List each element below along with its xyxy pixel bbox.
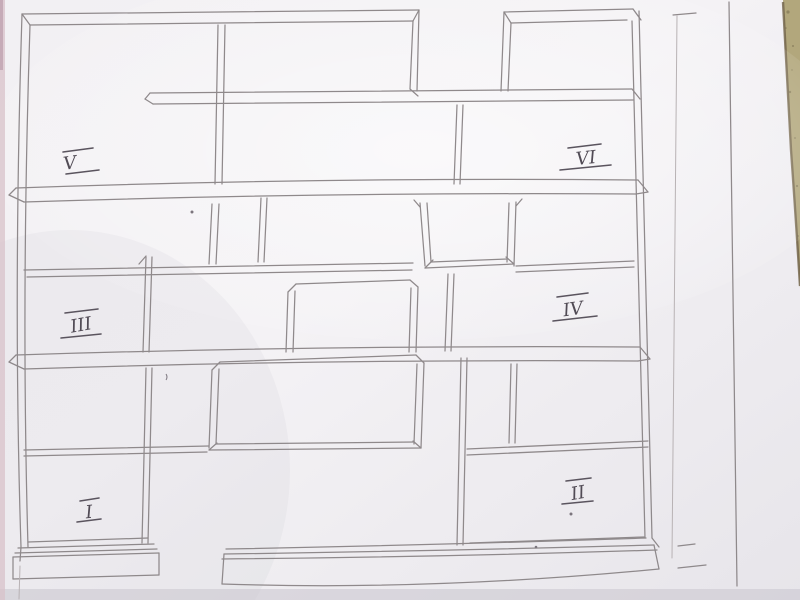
label-roman-iii: III bbox=[68, 313, 95, 338]
shadow-bottom-edge bbox=[0, 589, 800, 600]
label-roman-vi: VI bbox=[575, 147, 598, 170]
left-corner-tint bbox=[0, 0, 3, 70]
photo-of-sketch: V VI III IV I II bbox=[0, 0, 800, 600]
sketch-canvas: V VI III IV I II bbox=[0, 0, 800, 600]
left-edge-tint bbox=[0, 0, 5, 600]
